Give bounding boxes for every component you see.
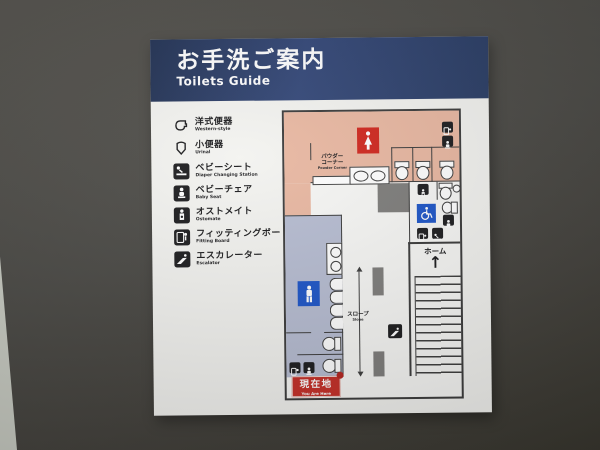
toilet: [322, 359, 341, 371]
legend-label-en: Urinal: [195, 150, 224, 155]
wall: [324, 332, 343, 334]
wheelchair-icon: [419, 206, 434, 221]
urinal-icon: [173, 140, 189, 156]
wall: [409, 182, 411, 242]
western-toilet-icon: [173, 117, 189, 133]
toilet: [439, 183, 451, 199]
diaper-station-icon: [173, 163, 189, 179]
stairs: [415, 276, 462, 376]
toilet: [442, 202, 457, 212]
slope-arrow-head-bottom: [357, 372, 363, 377]
ostomate-icon: [174, 207, 190, 223]
male-icon: [302, 284, 315, 304]
sign-title-japanese: お手洗ご案内: [176, 45, 488, 74]
womens-area-extension: [285, 183, 311, 215]
accessible-toilet-sign: [417, 204, 436, 223]
baby-seat-icon: [174, 185, 190, 201]
legend-label-jp: オストメイト: [196, 207, 253, 218]
pillar: [378, 183, 410, 212]
slope-arrow-head-top: [356, 267, 362, 272]
sink: [330, 261, 341, 272]
sink: [370, 170, 385, 181]
legend-label-en: Escalator: [196, 261, 263, 267]
fitting-board-icon: [174, 229, 190, 245]
legend-item-ostomate: オストメイトOstomate: [174, 207, 253, 230]
legend-label-jp: 小便器: [195, 140, 224, 150]
legend-item-escalator: エスカレーターEscalator: [174, 251, 263, 274]
you-are-here-en: You Are Here: [293, 391, 340, 396]
ostomate-icon: [418, 184, 429, 195]
legend-item-fitting-board: フィッティングボードFitting Board: [174, 228, 291, 251]
baby-seat-icon: [303, 362, 314, 373]
legend-label-en: Ostomate: [196, 217, 253, 223]
mens-sink-counter: [326, 243, 342, 275]
urinal: [330, 304, 343, 317]
powder-counter: [312, 176, 351, 185]
legend-item-urinal: 小便器Urinal: [173, 140, 224, 163]
legend-label-jp: フィッティングボード: [196, 228, 290, 239]
toilet-guide-sign: お手洗ご案内 Toilets Guide 洋式便器Western-style 小…: [150, 36, 492, 416]
women-toilet-sign: [357, 127, 379, 153]
legend-label-en: Western-style: [195, 127, 233, 132]
toilet: [322, 337, 341, 349]
legend-label-jp: ベビーチェア: [196, 185, 253, 196]
you-are-here-badge: 現在地 You Are Here: [292, 376, 341, 398]
legend-label-jp: 洋式便器: [195, 117, 233, 127]
powder-corner-label: パウダー コーナー Powder Corner: [315, 154, 349, 170]
stairwell: ホーム ↑: [408, 242, 461, 377]
wall: [286, 332, 311, 334]
urinal: [330, 291, 343, 304]
legend-label-en: Fitting Board: [196, 238, 290, 244]
baby-seat-icon: [442, 136, 453, 147]
you-are-here-jp: 現在地: [293, 379, 340, 391]
legend-label-jp: エスカレーター: [196, 251, 263, 262]
men-toilet-sign: [298, 281, 320, 306]
baby-seat-icon: [443, 215, 454, 226]
female-icon: [361, 130, 375, 150]
legend-label-en: Baby Seat: [196, 195, 253, 201]
womens-sink-counter: [349, 166, 389, 184]
floor-map: パウダー コーナー Powder Corner: [282, 109, 464, 401]
legend-item-diaper-station: ベビーシートDiaper Changing Station: [173, 163, 258, 186]
diaper-station-icon: [432, 228, 443, 239]
escalator-icon: [388, 324, 402, 338]
pillar: [372, 267, 383, 295]
sink: [353, 171, 368, 182]
toilet: [439, 161, 452, 179]
sink: [330, 247, 341, 258]
up-arrow: ↑: [410, 253, 460, 273]
sink: [453, 185, 461, 193]
escalator-icon: [174, 251, 190, 267]
toilet: [415, 161, 428, 179]
wall-corner-highlight: [0, 0, 17, 450]
legend-item-baby-seat: ベビーチェアBaby Seat: [174, 185, 253, 208]
photo-background: お手洗ご案内 Toilets Guide 洋式便器Western-style 小…: [0, 0, 600, 450]
urinal: [330, 278, 343, 291]
wall: [310, 143, 312, 160]
sign-title-english: Toilets Guide: [176, 71, 488, 88]
fitting-board-icon: [289, 362, 300, 373]
fitting-board-icon: [442, 122, 453, 133]
legend-item-western-toilet: 洋式便器Western-style: [173, 117, 233, 140]
sign-header: お手洗ご案内 Toilets Guide: [150, 36, 489, 102]
pillar: [373, 351, 384, 376]
slope-label: スロープ Slope: [343, 311, 373, 321]
legend-label-jp: ベビーシート: [195, 163, 257, 174]
urinal: [330, 317, 343, 330]
legend-label-en: Diaper Changing Station: [195, 173, 257, 179]
fitting-board-icon: [417, 228, 428, 239]
toilet: [394, 161, 407, 179]
you-are-here-dot: [337, 372, 344, 379]
